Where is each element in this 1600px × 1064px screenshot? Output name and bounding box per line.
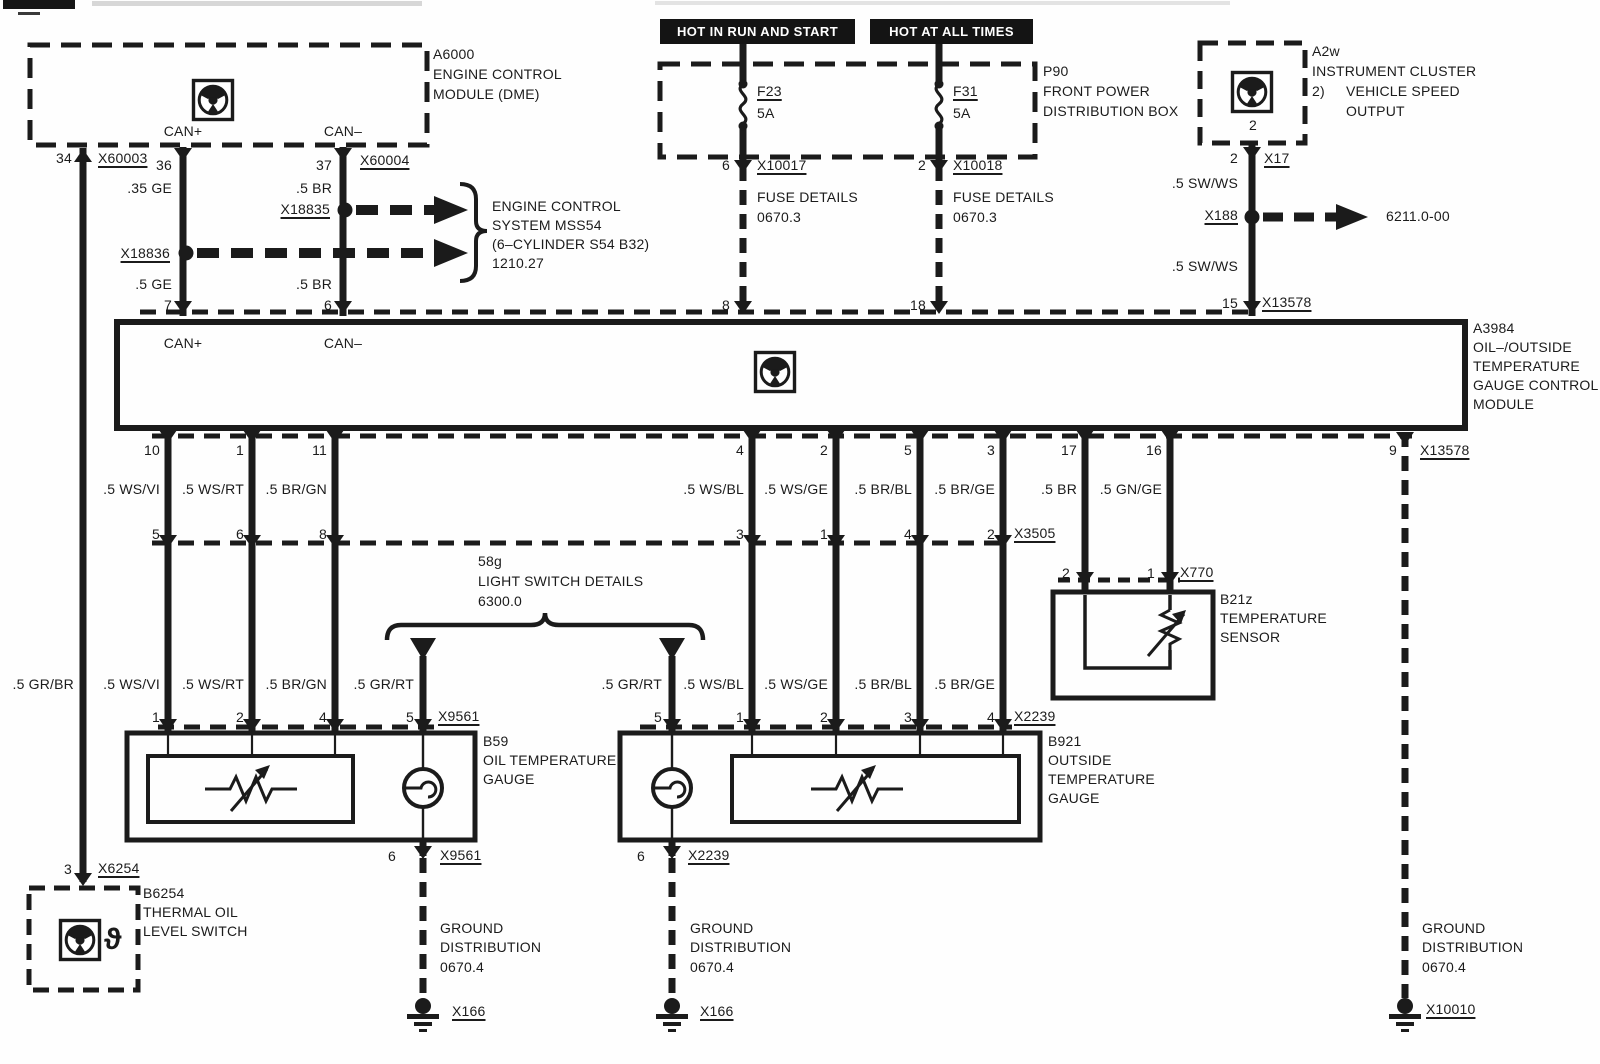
fuse-f31: F31	[953, 84, 978, 100]
conn-x3505: X3505	[1014, 526, 1055, 542]
b6254-name-2: LEVEL SWITCH	[143, 924, 248, 940]
ground-x10010-icon	[1389, 998, 1421, 1032]
wiring-diagram-page: HOT IN RUN AND START HOT AT ALL TIMES	[0, 0, 1600, 1064]
a2w-id: A2w	[1312, 44, 1340, 60]
p90-box	[660, 64, 1035, 157]
wire-gr-br: .5 GR/BR	[12, 677, 74, 693]
b21z-id: B21z	[1220, 592, 1253, 608]
ls-name: LIGHT SWITCH DETAILS	[478, 574, 643, 590]
conn-x166-1: X166	[452, 1004, 486, 1020]
b21z-name-1: TEMPERATURE	[1220, 611, 1327, 627]
fuse-f23-amp: 5A	[757, 106, 775, 122]
wire-ws-vi-2: .5 WS/VI	[103, 677, 160, 693]
gnd3-2: DISTRIBUTION	[1422, 940, 1523, 956]
light-switch-brace	[387, 613, 703, 640]
conn-x6254: X6254	[98, 861, 139, 877]
pin-6: 6	[324, 298, 332, 314]
gnd3-3: 0670.4	[1422, 960, 1466, 976]
conn-x166-2: X166	[700, 1004, 734, 1020]
dme-module-icon	[194, 81, 233, 120]
a2w-note-num: 2)	[1312, 84, 1325, 100]
pin-11: 11	[312, 443, 327, 459]
p90-name-1: FRONT POWER	[1043, 84, 1150, 100]
b6254-module-icon	[61, 921, 100, 960]
pin-18: 18	[910, 298, 926, 314]
pin-b921-5: 5	[654, 710, 662, 726]
wire-ws-rt-2: .5 WS/RT	[182, 677, 244, 693]
conn-x2239-top: X2239	[1014, 709, 1055, 725]
mss54-2: SYSTEM MSS54	[492, 218, 602, 234]
conn-x188: X188	[1205, 208, 1239, 224]
pin-37: 37	[316, 158, 332, 174]
pin-b59-4: 4	[319, 710, 327, 726]
ref-arrow-x18835	[338, 196, 469, 224]
gnd2-3: 0670.4	[690, 960, 734, 976]
conn-x10017: X10017	[757, 158, 806, 174]
b921-id: B921	[1048, 734, 1082, 750]
b921-name-1: OUTSIDE	[1048, 753, 1112, 769]
b59-resistor-icon	[205, 765, 297, 811]
pin-36: 36	[156, 158, 172, 174]
pin-b59-2: 2	[236, 710, 244, 726]
dme-name-2: MODULE (DME)	[433, 87, 540, 103]
conn-x18836: X18836	[121, 246, 170, 262]
a2w-name-3: OUTPUT	[1346, 104, 1405, 120]
b921-name-3: GAUGE	[1048, 791, 1100, 807]
wire-ws-ge-1: .5 WS/GE	[764, 482, 828, 498]
fuse-details-1b: 0670.3	[757, 210, 801, 226]
pin-3b: 3	[736, 527, 744, 543]
b59-id: B59	[483, 734, 509, 750]
b921-lamp-icon	[653, 735, 691, 838]
p90-id: P90	[1043, 64, 1069, 80]
a3984-module-icon	[756, 353, 795, 392]
b21z-name-2: SENSOR	[1220, 630, 1280, 646]
conn-x9561-bot: X9561	[440, 848, 481, 864]
pin-8b: 8	[319, 527, 327, 543]
pin-3a: 3	[987, 443, 995, 459]
gnd3-1: GROUND	[1422, 921, 1485, 937]
gnd2-2: DISTRIBUTION	[690, 940, 791, 956]
ground-x166-right-icon	[656, 998, 688, 1032]
b21z-sensor-box	[1053, 592, 1213, 698]
wire-5-br-b: .5 BR	[296, 277, 332, 293]
pin-sens-1: 1	[1147, 566, 1155, 582]
conn-x18835: X18835	[281, 202, 330, 218]
pin-34: 34	[56, 151, 72, 167]
fuse-details-2b: 0670.3	[953, 210, 997, 226]
pin-a2w-2: 2	[1230, 151, 1238, 167]
ref-arrow-x188	[1245, 204, 1369, 230]
pin-10: 10	[144, 443, 160, 459]
pin-b59-6: 6	[388, 849, 396, 865]
a2w-name-1: INSTRUMENT CLUSTER	[1312, 64, 1476, 80]
pin-2a: 2	[820, 443, 828, 459]
ref-6211: 6211.0-00	[1386, 209, 1450, 225]
gnd1-3: 0670.4	[440, 960, 484, 976]
fuse-f23-symbol	[739, 80, 748, 131]
mss54-4: 1210.27	[492, 256, 544, 272]
mss54-3: (6–CYLINDER S54 B32)	[492, 237, 649, 253]
pin-b921-2: 2	[820, 710, 828, 726]
conn-x10010: X10010	[1426, 1002, 1475, 1018]
a2w-icon-pin: 2	[1249, 118, 1257, 134]
wire-br-ge-1: .5 BR/GE	[934, 482, 995, 498]
wire-ws-vi-1: .5 WS/VI	[103, 482, 160, 498]
pin-2b: 2	[987, 527, 995, 543]
pin-5b: 5	[152, 527, 160, 543]
dme-name-1: ENGINE CONTROL	[433, 67, 562, 83]
ref-arrow-x18836	[179, 239, 469, 267]
b59-lamp-icon	[404, 735, 442, 838]
wire-br-bl-2: .5 BR/BL	[854, 677, 912, 693]
wire-5-ge: .5 GE	[135, 277, 172, 293]
b59-name-1: OIL TEMPERATURE	[483, 753, 616, 769]
a2w-module-icon	[1233, 73, 1272, 112]
p90-name-2: DISTRIBUTION BOX	[1043, 104, 1178, 120]
pin-1a: 1	[236, 443, 244, 459]
pin-fuse-2: 2	[918, 158, 926, 174]
pin-b921-1: 1	[736, 710, 744, 726]
ground-x166-left-icon	[407, 998, 439, 1032]
pin-fuse-6: 6	[722, 158, 730, 174]
wire-gr-rt-1: .5 GR/RT	[354, 677, 414, 693]
gr-rt-arrow-right	[659, 638, 685, 660]
b6254-name-1: THERMAL OIL	[143, 905, 238, 921]
gnd1-1: GROUND	[440, 921, 503, 937]
pin-b6254-3: 3	[64, 862, 72, 878]
wire-ws-ge-2: .5 WS/GE	[764, 677, 828, 693]
ls-id: 58g	[478, 554, 502, 570]
wire-ws-bl-2: .5 WS/BL	[683, 677, 744, 693]
gnd2-1: GROUND	[690, 921, 753, 937]
a2w-name-2: VEHICLE SPEED	[1346, 84, 1460, 100]
mod-name-1: OIL–/OUTSIDE	[1473, 340, 1572, 356]
wire-ws-rt-1: .5 WS/RT	[182, 482, 244, 498]
mod-name-2: TEMPERATURE	[1473, 359, 1580, 375]
pin-b921-4: 4	[987, 710, 995, 726]
fuse-details-2a: FUSE DETAILS	[953, 190, 1054, 206]
wire-gn-ge: .5 GN/GE	[1100, 482, 1162, 498]
ls-ref: 6300.0	[478, 594, 522, 610]
gr-rt-arrow-left	[410, 638, 436, 660]
pin-sens-2: 2	[1062, 566, 1070, 582]
pin-b59-5: 5	[406, 710, 414, 726]
thermal-switch-symbol: ϑ	[104, 923, 122, 957]
mod-can-plus: CAN+	[164, 336, 203, 352]
pin-7: 7	[164, 298, 172, 314]
pin-b921-6: 6	[637, 849, 645, 865]
conn-x60004: X60004	[360, 153, 409, 169]
pin-9: 9	[1389, 443, 1397, 459]
mod-id: A3984	[1473, 321, 1514, 337]
conn-x10018: X10018	[953, 158, 1002, 174]
wire-sww-2: .5 SW/WS	[1172, 259, 1238, 275]
dme-id: A6000	[433, 47, 474, 63]
b921-name-2: TEMPERATURE	[1048, 772, 1155, 788]
pin-b59-1: 1	[152, 710, 160, 726]
wire-br-gn-2: .5 BR/GN	[265, 677, 327, 693]
conn-x9561-top: X9561	[438, 709, 479, 725]
wire-5-br-a: .5 BR	[296, 181, 332, 197]
mod-can-minus: CAN–	[324, 336, 362, 352]
mod-name-4: MODULE	[1473, 397, 1534, 413]
pin-4b: 4	[904, 527, 912, 543]
conn-x770: X770	[1180, 565, 1214, 581]
pin-1b: 1	[820, 527, 828, 543]
b921-resistor-icon	[811, 765, 903, 811]
wire-br: .5 BR	[1041, 482, 1077, 498]
wire-br-ge-2: .5 BR/GE	[934, 677, 995, 693]
wire-35-ge: .35 GE	[127, 181, 172, 197]
fuse-f31-symbol	[935, 80, 944, 131]
dme-can-plus: CAN+	[164, 124, 203, 140]
mss54-1: ENGINE CONTROL	[492, 199, 621, 215]
pin-5a: 5	[904, 443, 912, 459]
pin-15: 15	[1222, 296, 1238, 312]
conn-x2239-bot: X2239	[688, 848, 729, 864]
wire-ws-bl-1: .5 WS/BL	[683, 482, 744, 498]
pin-4a: 4	[736, 443, 744, 459]
mod-name-3: GAUGE CONTROL	[1473, 378, 1599, 394]
pin-8: 8	[722, 298, 730, 314]
fuse-f31-amp: 5A	[953, 106, 971, 122]
b59-name-2: GAUGE	[483, 772, 535, 788]
pin-6b: 6	[236, 527, 244, 543]
wire-br-gn-1: .5 BR/GN	[265, 482, 327, 498]
dme-can-minus: CAN–	[324, 124, 362, 140]
wire-gr-rt-2: .5 GR/RT	[602, 677, 662, 693]
fuse-f23: F23	[757, 84, 782, 100]
fuse-details-1a: FUSE DETAILS	[757, 190, 858, 206]
pin-16: 16	[1146, 443, 1162, 459]
pin-17: 17	[1061, 443, 1077, 459]
conn-x13578-bot: X13578	[1420, 443, 1469, 459]
b6254-id: B6254	[143, 886, 184, 902]
conn-x17: X17	[1264, 151, 1290, 167]
conn-x13578-top: X13578	[1262, 295, 1311, 311]
mss54-brace	[460, 184, 487, 281]
gnd1-2: DISTRIBUTION	[440, 940, 541, 956]
pin-b921-3: 3	[904, 710, 912, 726]
wire-sww-1: .5 SW/WS	[1172, 176, 1238, 192]
wire-br-bl-1: .5 BR/BL	[854, 482, 912, 498]
conn-x60003: X60003	[98, 151, 147, 167]
